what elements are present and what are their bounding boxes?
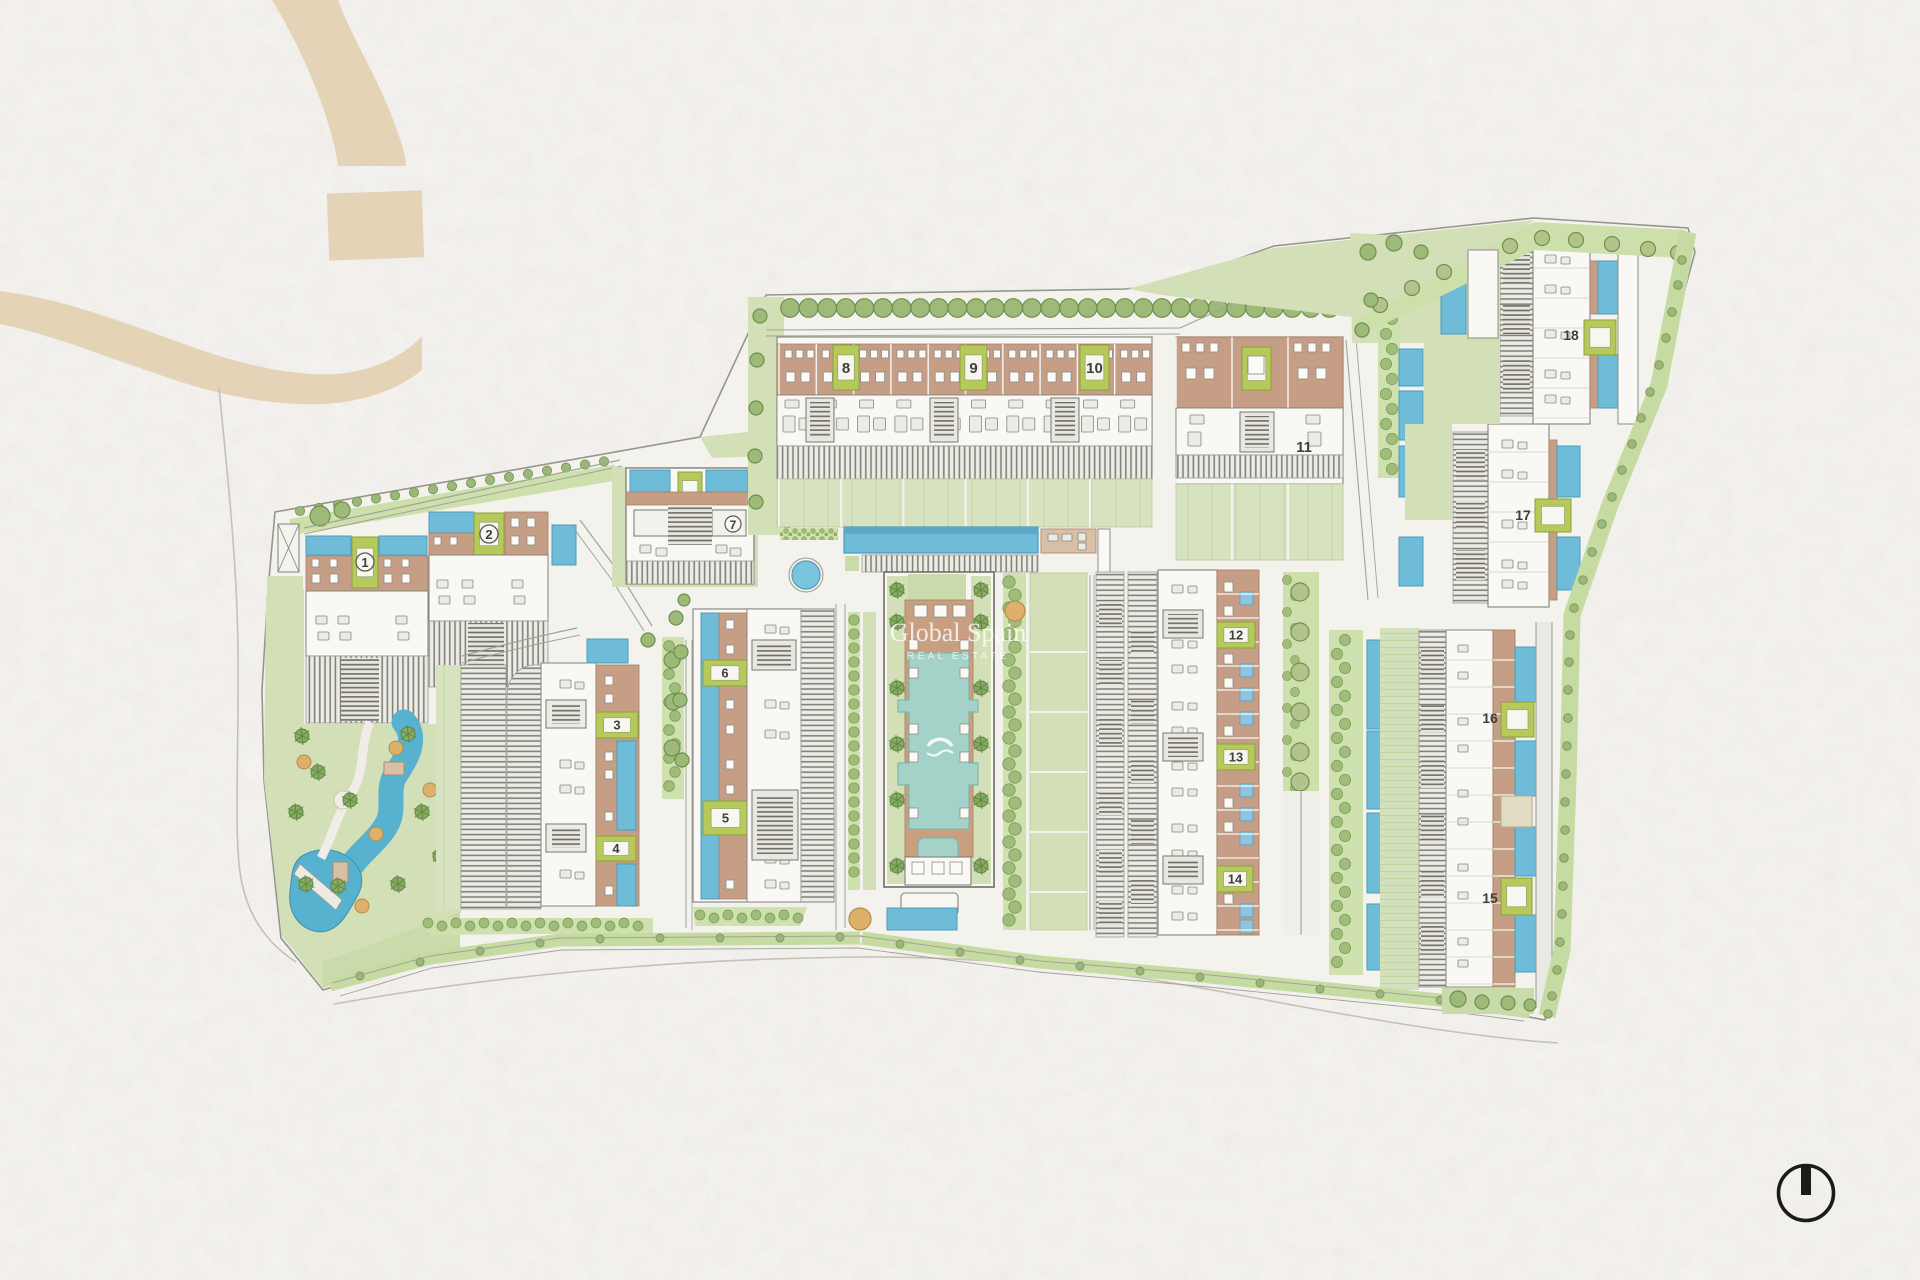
svg-text:3: 3 [613,718,620,733]
svg-text:6: 6 [721,666,728,681]
svg-text:REAL ESTATE: REAL ESTATE [907,650,1009,662]
svg-text:15: 15 [1482,890,1498,906]
svg-text:5: 5 [722,811,729,826]
svg-text:7: 7 [730,518,737,532]
svg-text:17: 17 [1515,507,1531,523]
svg-text:11: 11 [1296,439,1312,456]
svg-text:1: 1 [361,555,368,570]
svg-text:4: 4 [612,841,620,856]
svg-text:18: 18 [1563,327,1579,343]
svg-text:9: 9 [969,360,977,377]
svg-text:16: 16 [1482,710,1498,726]
svg-text:13: 13 [1229,750,1243,765]
svg-text:14: 14 [1228,872,1243,887]
svg-text:Global Spain: Global Spain [890,618,1027,647]
svg-text:8: 8 [842,360,850,377]
svg-text:12: 12 [1229,628,1243,643]
svg-text:2: 2 [485,527,492,542]
svg-text:10: 10 [1086,360,1103,377]
